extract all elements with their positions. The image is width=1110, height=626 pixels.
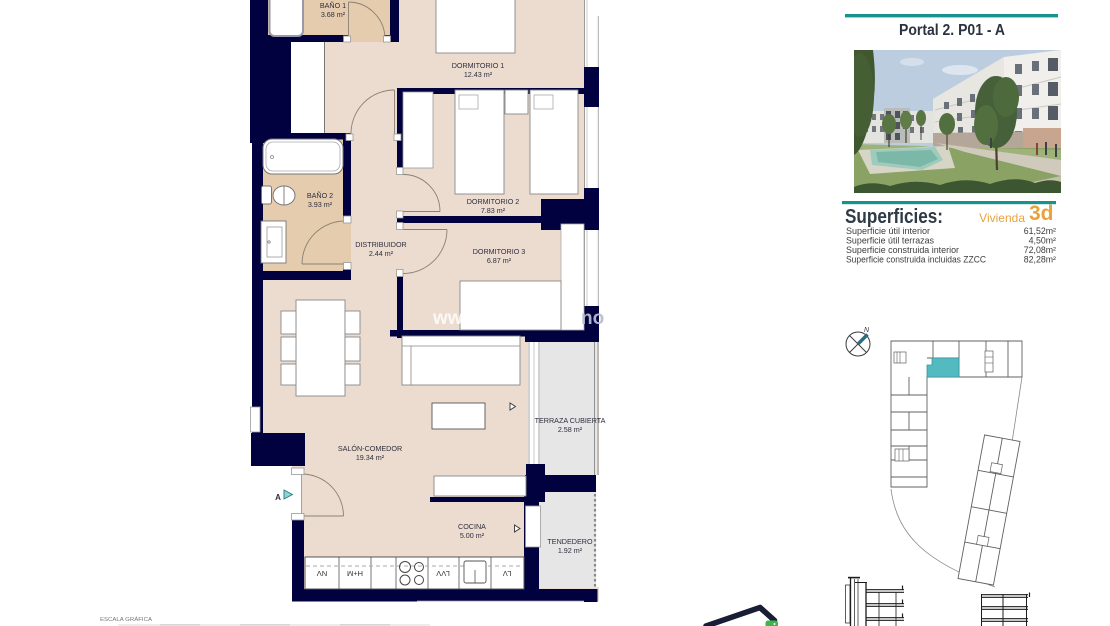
svg-text:Superficie útil interior: Superficie útil interior (846, 226, 930, 236)
svg-text:TENDEDERO: TENDEDERO (547, 537, 593, 546)
svg-text:Superficie útil terrazas: Superficie útil terrazas (846, 236, 935, 246)
svg-text:Vivienda: Vivienda (979, 211, 1025, 225)
svg-text:ESCALA GRÁFICA: ESCALA GRÁFICA (100, 616, 153, 623)
svg-text:no: no (581, 308, 604, 329)
svg-text:Superficie construida incluida: Superficie construida incluidas ZZCC (846, 255, 987, 265)
svg-text:3.68 m²: 3.68 m² (321, 10, 346, 19)
svg-text:LV: LV (503, 569, 512, 578)
svg-text:LVV: LVV (436, 569, 450, 578)
svg-text:DORMITORIO 2: DORMITORIO 2 (467, 197, 520, 206)
svg-text:12.43 m²: 12.43 m² (464, 70, 493, 79)
svg-text:1.92 m²: 1.92 m² (558, 546, 583, 555)
svg-text:Superficies:: Superficies: (845, 206, 943, 228)
svg-text:wwwsainh: wwwsainh (432, 308, 527, 329)
svg-text:3.93 m²: 3.93 m² (308, 200, 333, 209)
svg-text:DORMITORIO 1: DORMITORIO 1 (452, 61, 505, 70)
svg-text:Portal 2. P01 - A: Portal 2. P01 - A (899, 22, 1005, 39)
svg-text:5.00 m²: 5.00 m² (460, 531, 485, 540)
svg-text:19.34 m²: 19.34 m² (356, 453, 385, 462)
svg-text:H+M: H+M (347, 569, 363, 578)
svg-text:BAÑO 1: BAÑO 1 (320, 1, 346, 10)
svg-text:2.58 m²: 2.58 m² (558, 425, 583, 434)
svg-text:82,28m²: 82,28m² (1024, 255, 1056, 265)
svg-text:DORMITORIO 3: DORMITORIO 3 (473, 247, 526, 256)
svg-text:A: A (275, 493, 281, 502)
svg-text:3d: 3d (1029, 202, 1054, 225)
svg-text:COCINA: COCINA (458, 522, 486, 531)
svg-text:DISTRIBUIDOR: DISTRIBUIDOR (355, 240, 407, 249)
svg-text:6.87 m²: 6.87 m² (487, 256, 512, 265)
svg-text:Superficie construida interior: Superficie construida interior (846, 245, 959, 255)
svg-text:SALÓN-COMEDOR: SALÓN-COMEDOR (338, 444, 402, 453)
svg-text:NV: NV (317, 569, 327, 578)
svg-text:TERRAZA CUBIERTA: TERRAZA CUBIERTA (535, 416, 606, 425)
svg-text:4,50m²: 4,50m² (1029, 236, 1056, 246)
svg-text:72,08m²: 72,08m² (1024, 245, 1056, 255)
svg-text:61,52m²: 61,52m² (1024, 226, 1056, 236)
svg-text:2.44 m²: 2.44 m² (369, 249, 394, 258)
svg-text:BAÑO 2: BAÑO 2 (307, 191, 333, 200)
svg-text:7.83 m²: 7.83 m² (481, 206, 506, 215)
